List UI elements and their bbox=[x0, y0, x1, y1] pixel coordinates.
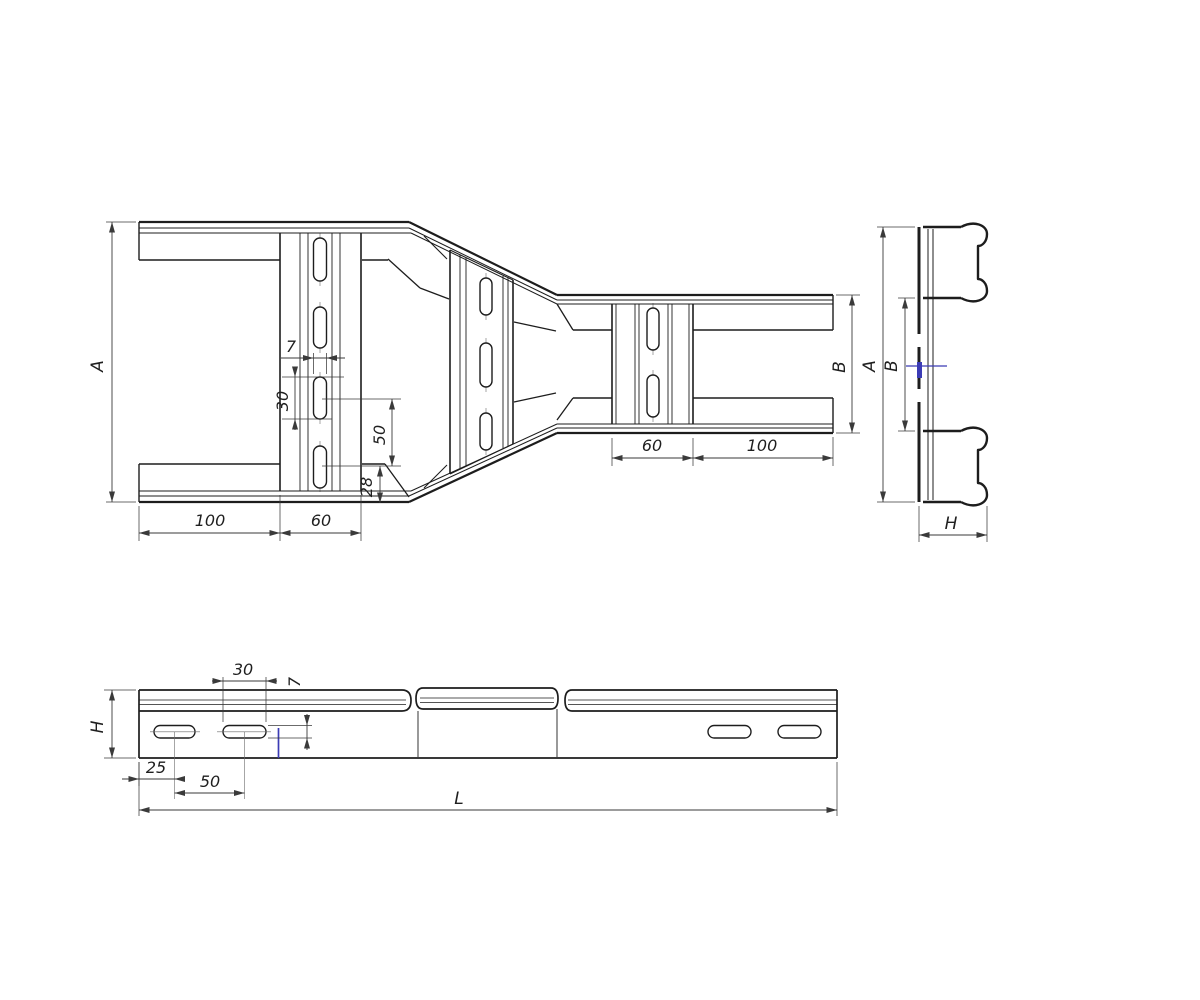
dim-label-end-b: B bbox=[882, 360, 902, 372]
dim-label-side-25: 25 bbox=[146, 758, 166, 777]
plan-view: A 100 60 7 30 bbox=[88, 222, 860, 541]
side-view: H 30 7 25 50 bbox=[88, 660, 837, 816]
dim-label-plan-100-right: 100 bbox=[747, 436, 778, 455]
dim-label-plan-b: B bbox=[830, 361, 850, 373]
dim-label-plan-slot-length: 30 bbox=[273, 391, 292, 411]
plan-rung-middle bbox=[450, 250, 513, 474]
dim-label-side-h: H bbox=[88, 720, 108, 733]
dim-label-side-30: 30 bbox=[233, 660, 253, 679]
drawing-canvas: A 100 60 7 30 bbox=[0, 0, 1200, 1000]
end-view: A B H bbox=[860, 224, 987, 542]
dim-label-side-l: L bbox=[454, 789, 463, 809]
dim-label-plan-a: A bbox=[88, 360, 108, 373]
dim-label-plan-slot-pitch: 50 bbox=[370, 425, 389, 445]
dim-label-plan-60-left: 60 bbox=[311, 511, 331, 530]
end-dimensions: A B H bbox=[860, 227, 987, 542]
dim-label-plan-slot-width: 7 bbox=[286, 337, 297, 356]
end-profile bbox=[906, 224, 987, 506]
blue-marker bbox=[917, 362, 922, 378]
dim-label-plan-60-right: 60 bbox=[642, 436, 662, 455]
side-profile bbox=[139, 688, 837, 799]
dim-label-side-7: 7 bbox=[285, 676, 304, 687]
dim-label-plan-edge-offset: 28 bbox=[357, 477, 376, 497]
plan-rung-right bbox=[612, 303, 693, 425]
dim-label-end-a: A bbox=[860, 360, 880, 373]
dim-label-end-h: H bbox=[945, 514, 958, 534]
dim-label-plan-100-left: 100 bbox=[195, 511, 226, 530]
technical-drawing: A 100 60 7 30 bbox=[0, 0, 1200, 1000]
dim-label-side-50: 50 bbox=[200, 772, 220, 791]
plan-rung-left bbox=[280, 233, 361, 492]
